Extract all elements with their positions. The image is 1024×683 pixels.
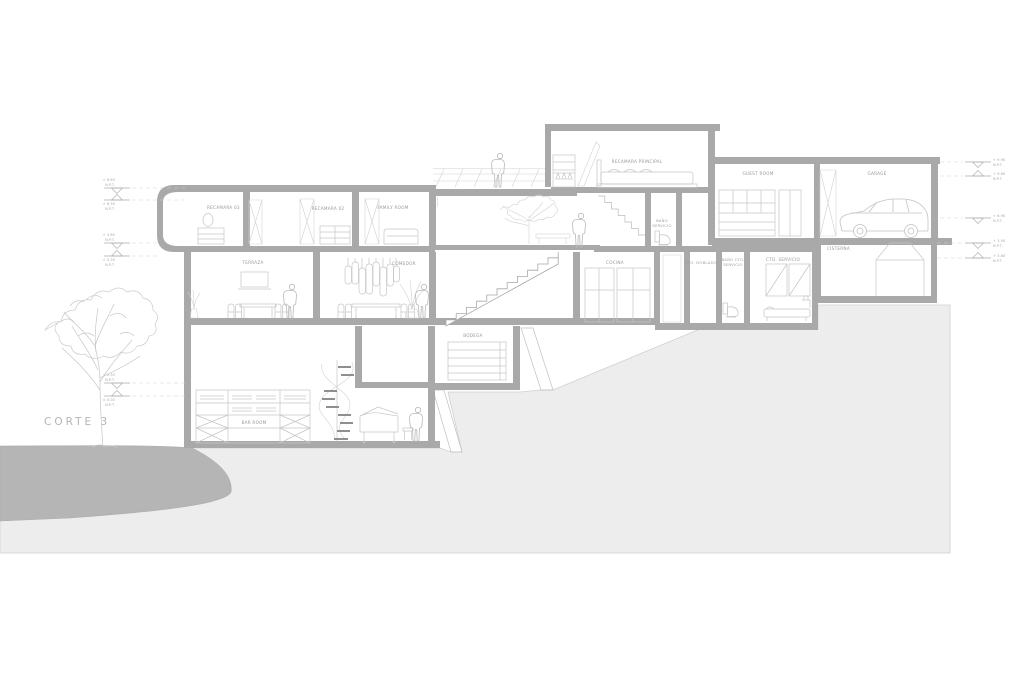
main-staircase: [446, 252, 558, 326]
bedroom2-furniture: [320, 226, 350, 244]
room-label-recamara-02: RECAMARA 02: [312, 206, 345, 211]
room-label-family-room: FAMILY ROOM: [377, 205, 408, 210]
level-datum: N.P.T.: [105, 238, 115, 242]
room-label-cisterna: CISTERNA: [827, 246, 850, 251]
level-value: + 3.60: [993, 254, 1005, 258]
room-label-bano-servicio-line2: SERVICIO: [652, 223, 671, 228]
level-value: + 6.60: [103, 178, 115, 182]
retaining-wall-hatch-upper: [521, 328, 553, 390]
level-value: + 3.90: [993, 239, 1005, 243]
level-datum: N.P.T.: [105, 378, 115, 382]
level-value: + 3.30: [103, 258, 115, 262]
comedor-table-chairs: [338, 304, 415, 318]
room-label-guest-room: GUEST ROOM: [742, 171, 773, 176]
level-value: + 9.90: [993, 158, 1005, 162]
room-label-bano-cto-line2: SERVICIO: [723, 262, 742, 267]
level-datum: N.P.T.: [105, 403, 115, 407]
level-datum: N.P.T.: [993, 163, 1003, 167]
room-label-cocina: COCINA: [606, 260, 624, 265]
level-datum: N.P.T.: [993, 244, 1003, 248]
room-label-recamara-03: RECAMARA 03: [207, 205, 240, 210]
level-markers-right: + 9.90 N.P.T. + 9.60 N.P.T. + 6.90 N.P.T…: [937, 158, 1005, 263]
familyroom-sofa: [384, 229, 418, 244]
level-marker: + 6.30 N.P.T.: [103, 195, 185, 212]
level-marker: + 9.90 N.P.T.: [940, 158, 1005, 168]
room-label-comedor: COMEDOR: [392, 261, 416, 266]
master-closet: [553, 155, 575, 187]
garage-door-panel: [820, 170, 836, 236]
car-illustration: [840, 199, 928, 238]
level-value: + 9.60: [993, 172, 1005, 176]
level-datum: N.P.T.: [105, 183, 115, 187]
level-marker: + 3.60 N.P.T.: [937, 253, 1005, 264]
room-label-recamara-principal: RECAMARA PRINCIPAL: [612, 159, 663, 164]
level-marker: + 0.30 N.P.T.: [103, 373, 185, 389]
person-in-terraza: [284, 284, 297, 318]
person-on-roof-terrace: [492, 153, 505, 187]
level-value: ± 0.00: [103, 398, 115, 402]
roof-terrace-paving: [433, 169, 545, 188]
level-markers-left: + 6.60 N.P.T. + 6.30 N.P.T. + 3.60 N.P.T…: [103, 178, 185, 407]
level-marker: ± 0.00 N.P.T.: [103, 391, 185, 408]
upper-staircase: [598, 196, 645, 235]
room-label-garage: GARAGE: [867, 171, 886, 176]
level-marker: + 3.30 N.P.T.: [103, 251, 160, 268]
level-value: + 3.60: [103, 233, 115, 237]
level-datum: N.P.T.: [993, 177, 1003, 181]
terraza-table-chairs: [228, 304, 289, 318]
master-bed: [597, 160, 697, 188]
drawing-title: CORTE 3: [44, 416, 110, 428]
room-label-cto-servicio: CTO. SERVICIO: [766, 257, 801, 262]
tv-screen: [238, 272, 271, 289]
room-label-terraza: TERRAZA: [241, 260, 263, 265]
architectural-section-sheet: RECAMARA PRINCIPAL GUEST ROOM GARAGE REC…: [0, 0, 1024, 683]
level-marker: + 9.60 N.P.T.: [940, 171, 1005, 182]
room-label-bar-room: BAR ROOM: [241, 420, 266, 425]
level-marker: + 3.60 N.P.T.: [103, 233, 160, 249]
level-datum: N.P.T.: [993, 219, 1003, 223]
level-datum: N.P.T.: [105, 207, 115, 211]
level-marker: + 6.90 N.P.T.: [940, 214, 1005, 224]
level-datum: N.P.T.: [993, 259, 1003, 263]
bedroom-door-1: [249, 200, 262, 244]
level-datum: N.P.T.: [105, 263, 115, 267]
section-drawing: RECAMARA PRINCIPAL GUEST ROOM GARAGE REC…: [0, 0, 1024, 683]
level-value: + 6.30: [103, 202, 115, 206]
room-label-bodega: BODEGA: [463, 333, 483, 338]
rounded-end-wall: [157, 185, 192, 252]
level-value: + 6.90: [993, 214, 1005, 218]
guest-room-shelving: [719, 190, 801, 236]
mezz-toilet: [655, 231, 670, 245]
kitchen-cabinets: [585, 268, 650, 322]
bedroom3-furniture: [198, 214, 224, 245]
room-label-cto-doblado: CTO. DOBLADO: [685, 260, 717, 265]
